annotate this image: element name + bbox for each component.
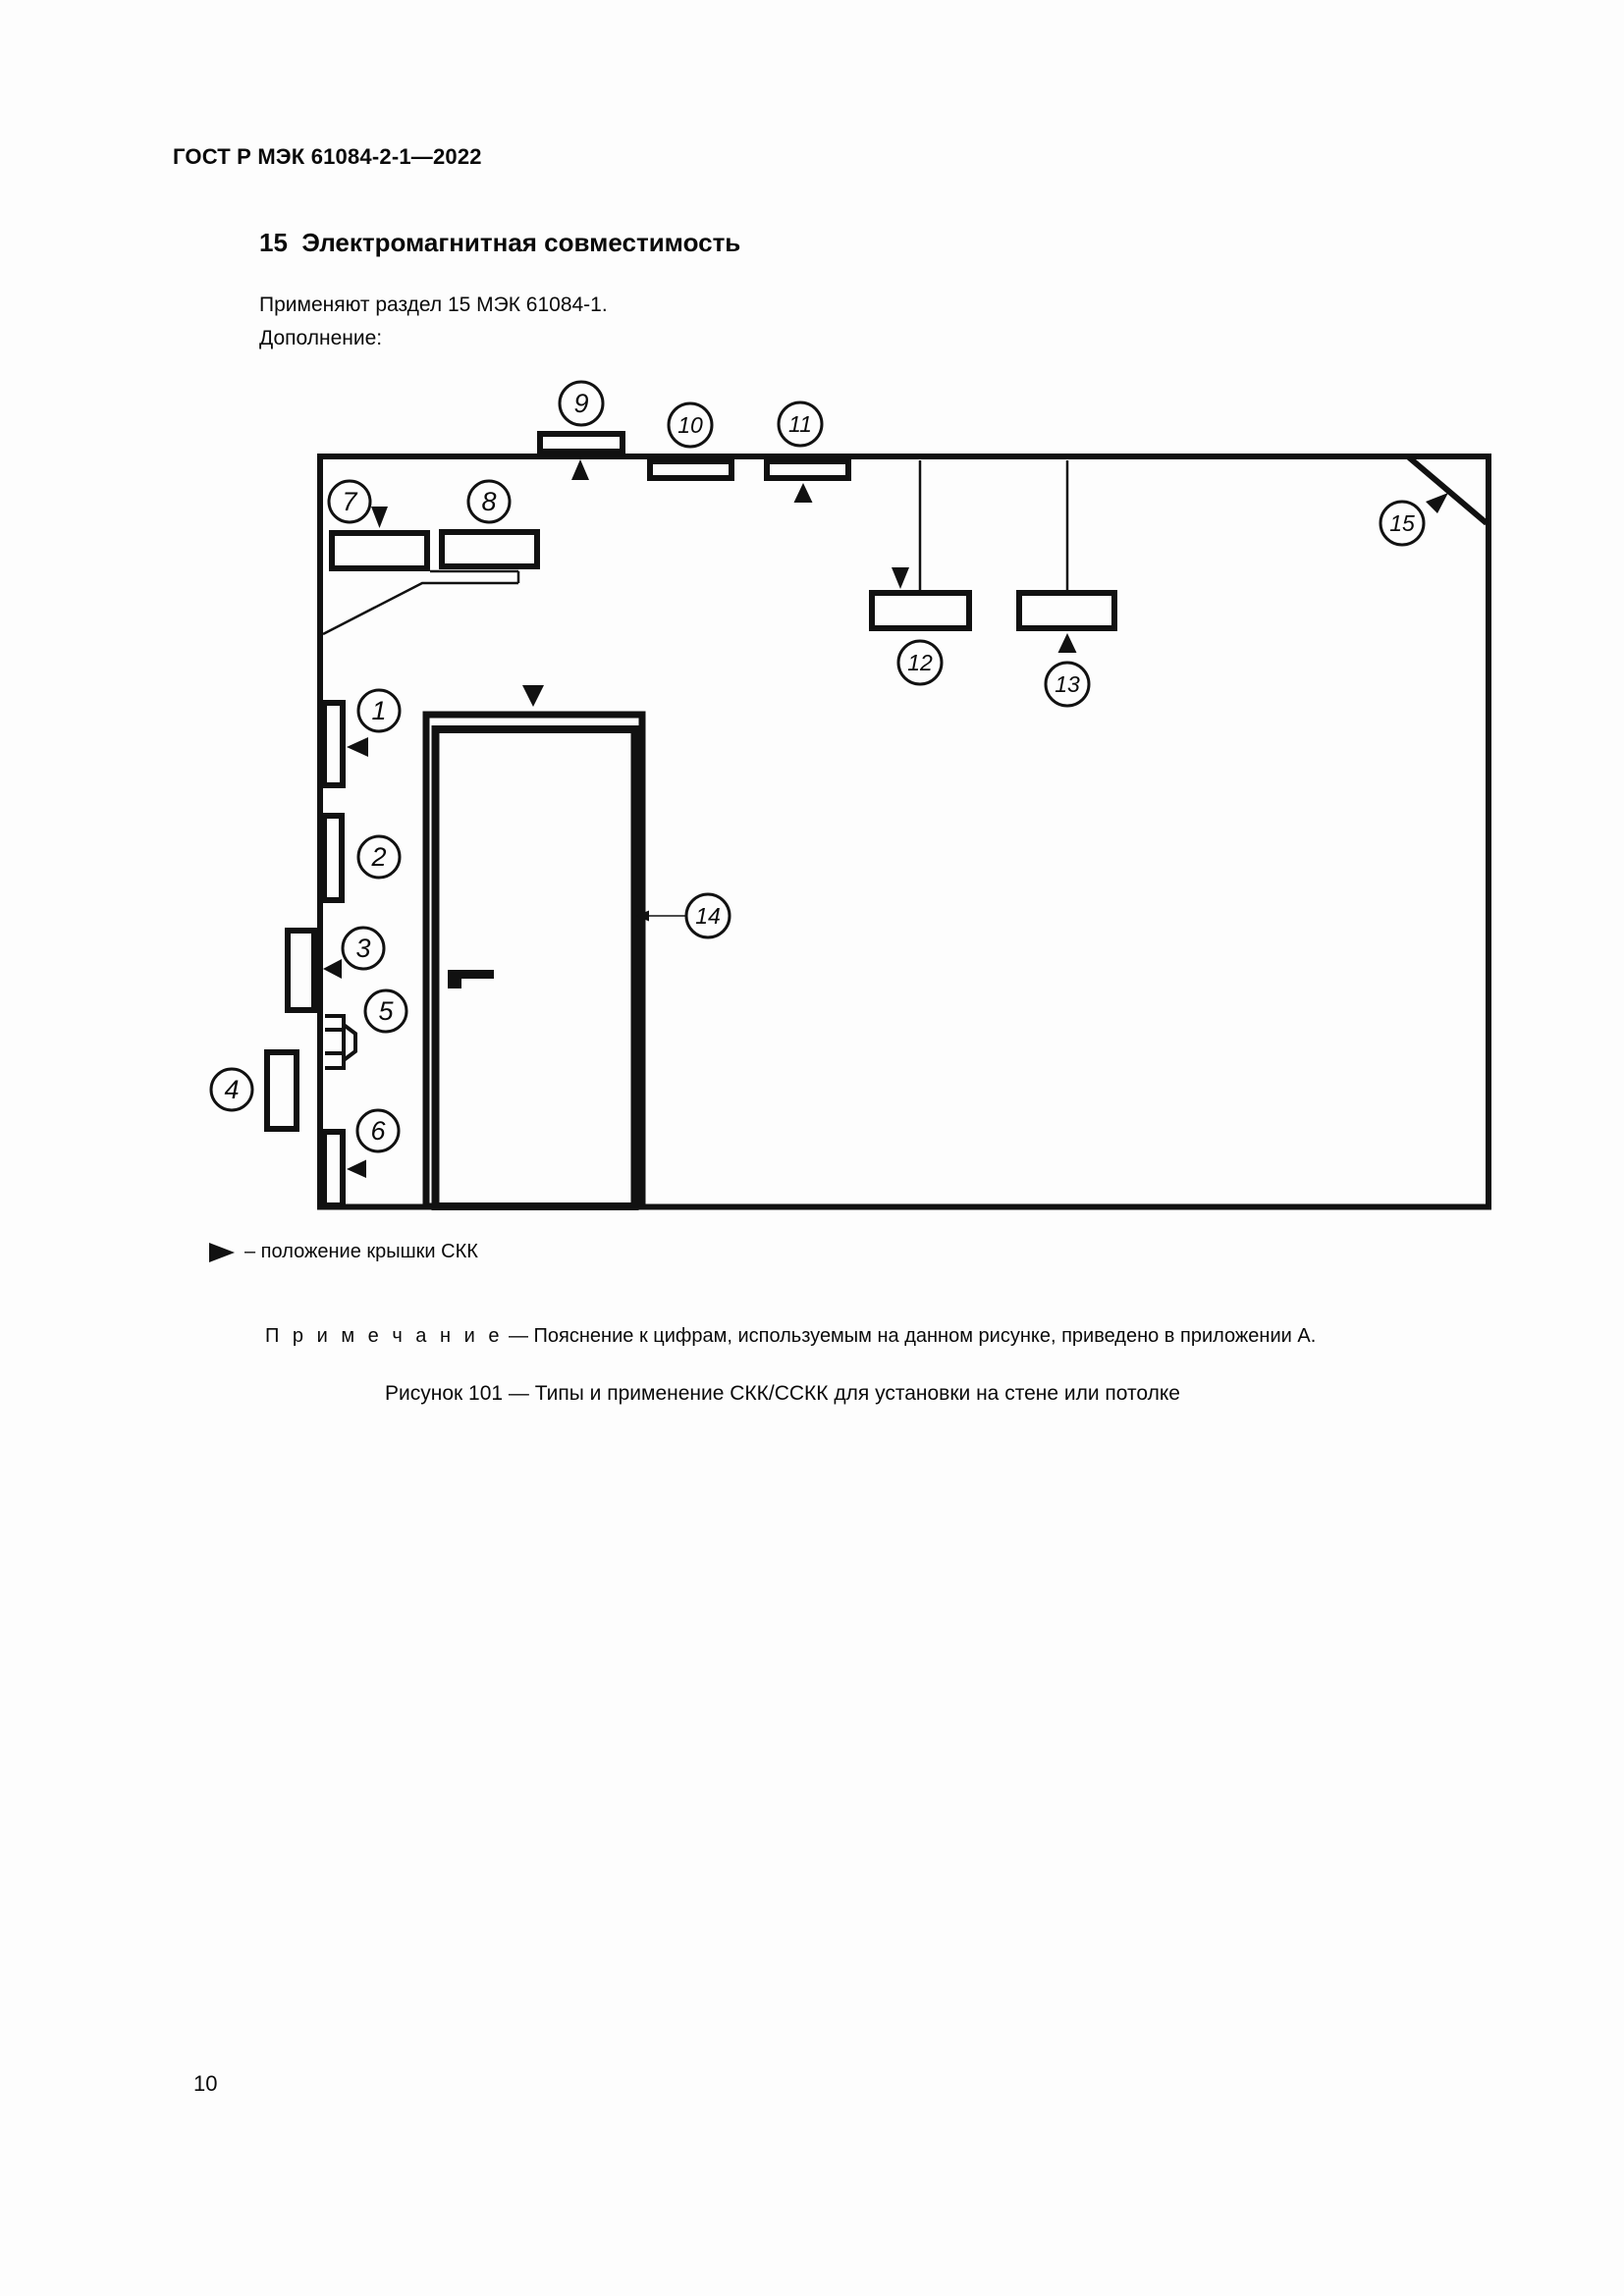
step-profile [323,571,518,634]
note-text: — Пояснение к цифрам, используемым на да… [503,1325,1316,1347]
figure-legend: – положение крышки СКК [209,1241,478,1263]
cover-arrow-3 [323,959,342,979]
callout-label-6: 6 [370,1116,386,1146]
suspended-trunking-13 [1019,460,1114,653]
callout-4: 4 [211,1069,252,1110]
cover-arrow-11 [794,483,813,503]
callout-8: 8 [468,481,510,522]
callout-label-10: 10 [677,412,703,438]
cover-arrow-9 [571,459,589,480]
cover-arrow-13 [1058,633,1077,653]
callout-9: 9 [560,382,603,425]
callout-label-8: 8 [481,487,496,516]
callout-label-2: 2 [370,842,386,872]
door-handle [448,970,494,988]
legend-text: – положение крышки СКК [244,1241,478,1263]
callout-1: 1 [358,690,400,731]
callout-15: 15 [1380,502,1424,545]
page-number: 10 [193,2071,217,2097]
figure-note: П р и м е ч а н и е — Пояснение к цифрам… [265,1325,1316,1348]
wall-trunking-4 [267,1052,297,1129]
suspended-trunking-12 [872,460,969,628]
callout-label-14: 14 [695,903,721,929]
document-page: ГОСТ Р МЭК 61084-2-1—2022 15 Электромагн… [0,0,1624,2296]
callout-11: 11 [779,402,822,446]
section-heading: 15 Электромагнитная совместимость [259,228,740,258]
ceiling-trunking-11 [767,461,848,503]
callout-6: 6 [357,1110,399,1151]
callout-label-4: 4 [224,1075,239,1104]
wall-trunking-3 [288,931,342,1010]
callout-10: 10 [669,403,712,447]
paragraph-apply-clause: Применяют раздел 15 МЭК 61084-1. [259,294,608,317]
figure-caption: Рисунок 101 — Типы и применение СКК/ССКК… [385,1382,1180,1406]
cover-arrow-7 [371,507,388,528]
callout-13: 13 [1046,663,1089,706]
callout-2: 2 [358,836,400,878]
ceiling-trunking-10 [650,461,731,478]
wall-profile-5 [325,1016,355,1068]
wall-trunking-2 [324,816,342,900]
note-label: П р и м е ч а н и е [265,1325,503,1347]
callout-label-11: 11 [788,411,812,437]
figure-101-diagram: 1 2 3 4 5 6 7 8 [137,373,1532,1286]
callout-12: 12 [898,641,942,684]
paragraph-addition: Дополнение: [259,327,382,350]
callout-label-1: 1 [371,696,386,725]
document-header: ГОСТ Р МЭК 61084-2-1—2022 [173,144,482,170]
callout-label-12: 12 [907,650,933,675]
callout-label-7: 7 [342,487,357,516]
callout-label-5: 5 [378,996,394,1026]
callout-label-3: 3 [355,934,370,963]
cover-arrow-12 [892,567,909,589]
callout-label-15: 15 [1389,510,1415,536]
cover-position-icon [209,1243,235,1262]
callout-5: 5 [365,990,406,1032]
callout-7: 7 [329,481,370,522]
callout-label-13: 13 [1055,671,1080,697]
door-frame-14 [426,685,686,1206]
callout-14: 14 [686,894,730,937]
callout-3: 3 [343,928,384,969]
cover-arrow-15 [1426,493,1448,513]
wall-trunking-8 [442,532,537,566]
callout-label-9: 9 [573,389,588,418]
cover-arrow-door [522,685,544,707]
cover-arrow-1 [347,737,368,757]
cover-arrow-6 [347,1160,366,1179]
door-leaf [436,729,635,1206]
